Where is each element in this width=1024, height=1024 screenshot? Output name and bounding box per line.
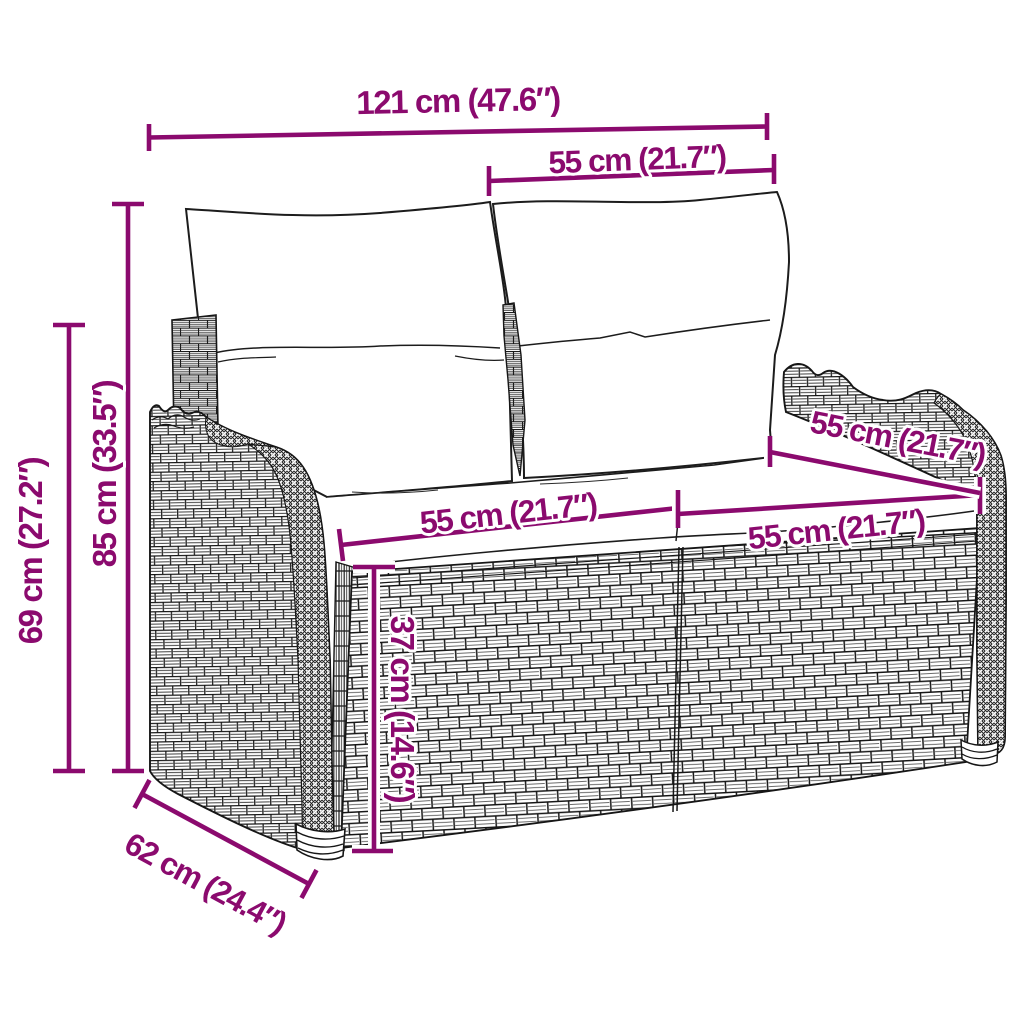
svg-text:37 cm (14.6″): 37 cm (14.6″): [384, 616, 421, 803]
svg-text:69 cm (27.2″): 69 cm (27.2″): [12, 457, 49, 644]
svg-text:85 cm (33.5″): 85 cm (33.5″): [86, 380, 123, 567]
svg-text:55 cm (21.7″): 55 cm (21.7″): [548, 138, 727, 181]
svg-text:121 cm (47.6″): 121 cm (47.6″): [356, 80, 561, 121]
